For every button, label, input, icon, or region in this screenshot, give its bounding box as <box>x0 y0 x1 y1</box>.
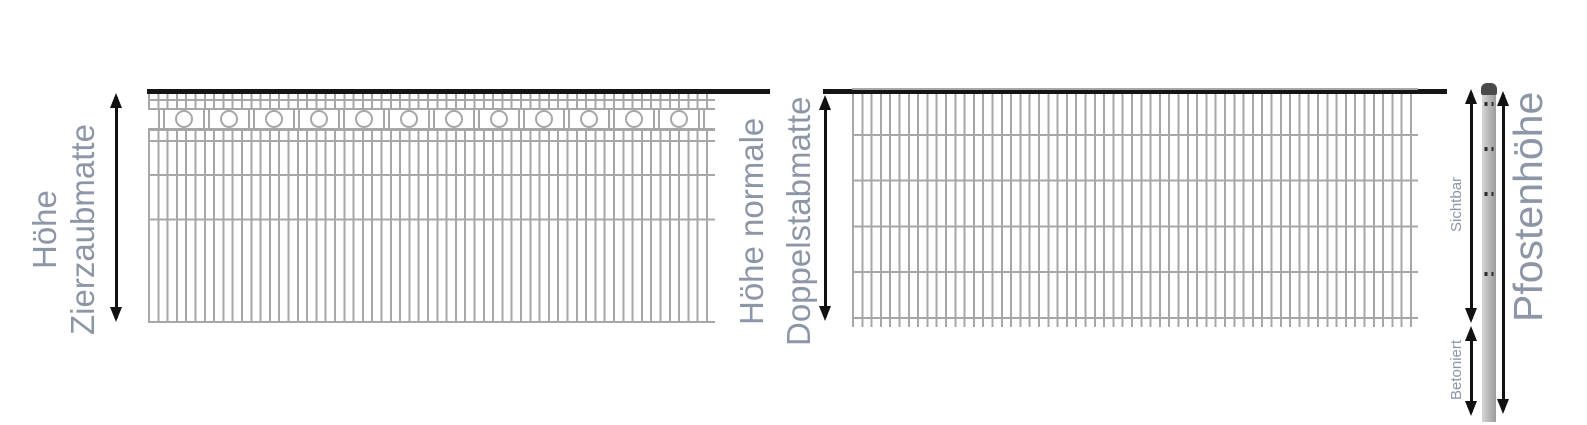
post-height-label: Pfostenhöhe <box>1505 100 1552 322</box>
post-concreted-section-label: Betoniert <box>1447 320 1467 420</box>
post-visible-section-arrow-icon <box>1465 89 1478 323</box>
ornament-circle <box>670 110 688 128</box>
arrow-shaft <box>115 97 118 318</box>
arrow-shaft <box>824 99 827 317</box>
post-visible-section-label: Sichtbar <box>1447 153 1467 255</box>
post-hole-pair <box>1485 192 1494 196</box>
ornament-circle <box>265 110 283 128</box>
circle-row <box>148 110 715 130</box>
doppel-label-line2: Doppelstabmatte <box>775 90 822 352</box>
doppel-panel-horizontal-wires <box>852 88 1418 319</box>
post-hole-pair <box>1485 102 1494 106</box>
zier-panel-horizontal-wires <box>148 129 715 249</box>
doppel-panel-height-label: Höhe normale Doppelstabmatte <box>728 90 826 352</box>
zier-fence-panel <box>148 88 715 321</box>
zier-label-line1: Höhe <box>26 105 64 355</box>
arrow-shaft <box>1470 93 1473 319</box>
ornament-circle <box>400 110 418 128</box>
ornament-circle <box>445 110 463 128</box>
zier-label-line2: Zierzaubmatte <box>64 105 102 355</box>
doppel-panel-height-arrow-icon <box>819 95 832 321</box>
ornament-circle <box>625 110 643 128</box>
ornament-circle <box>535 110 553 128</box>
fence-measurement-diagram: Höhe Zierzaubmatte Höhe normale Doppelst… <box>0 0 1587 425</box>
ornament-circle <box>220 110 238 128</box>
arrow-shaft <box>1470 330 1473 412</box>
fence-post <box>1482 86 1496 422</box>
ornament-circle <box>310 110 328 128</box>
zier-panel-height-arrow-icon <box>110 93 123 322</box>
doppel-fence-panel <box>852 88 1418 327</box>
post-hole-pair <box>1485 272 1494 276</box>
ornament-circle <box>490 110 508 128</box>
post-hole-pair <box>1485 147 1494 151</box>
zier-panel-height-label: Höhe Zierzaubmatte <box>26 105 104 355</box>
zier-panel-top-mesh-row <box>148 94 715 110</box>
doppel-label-line1: Höhe normale <box>728 90 775 352</box>
ornament-circle <box>175 110 193 128</box>
ornament-circle <box>580 110 598 128</box>
ornament-circle <box>355 110 373 128</box>
post-concreted-section-arrow-icon <box>1465 326 1478 416</box>
post-cap <box>1481 83 1497 95</box>
